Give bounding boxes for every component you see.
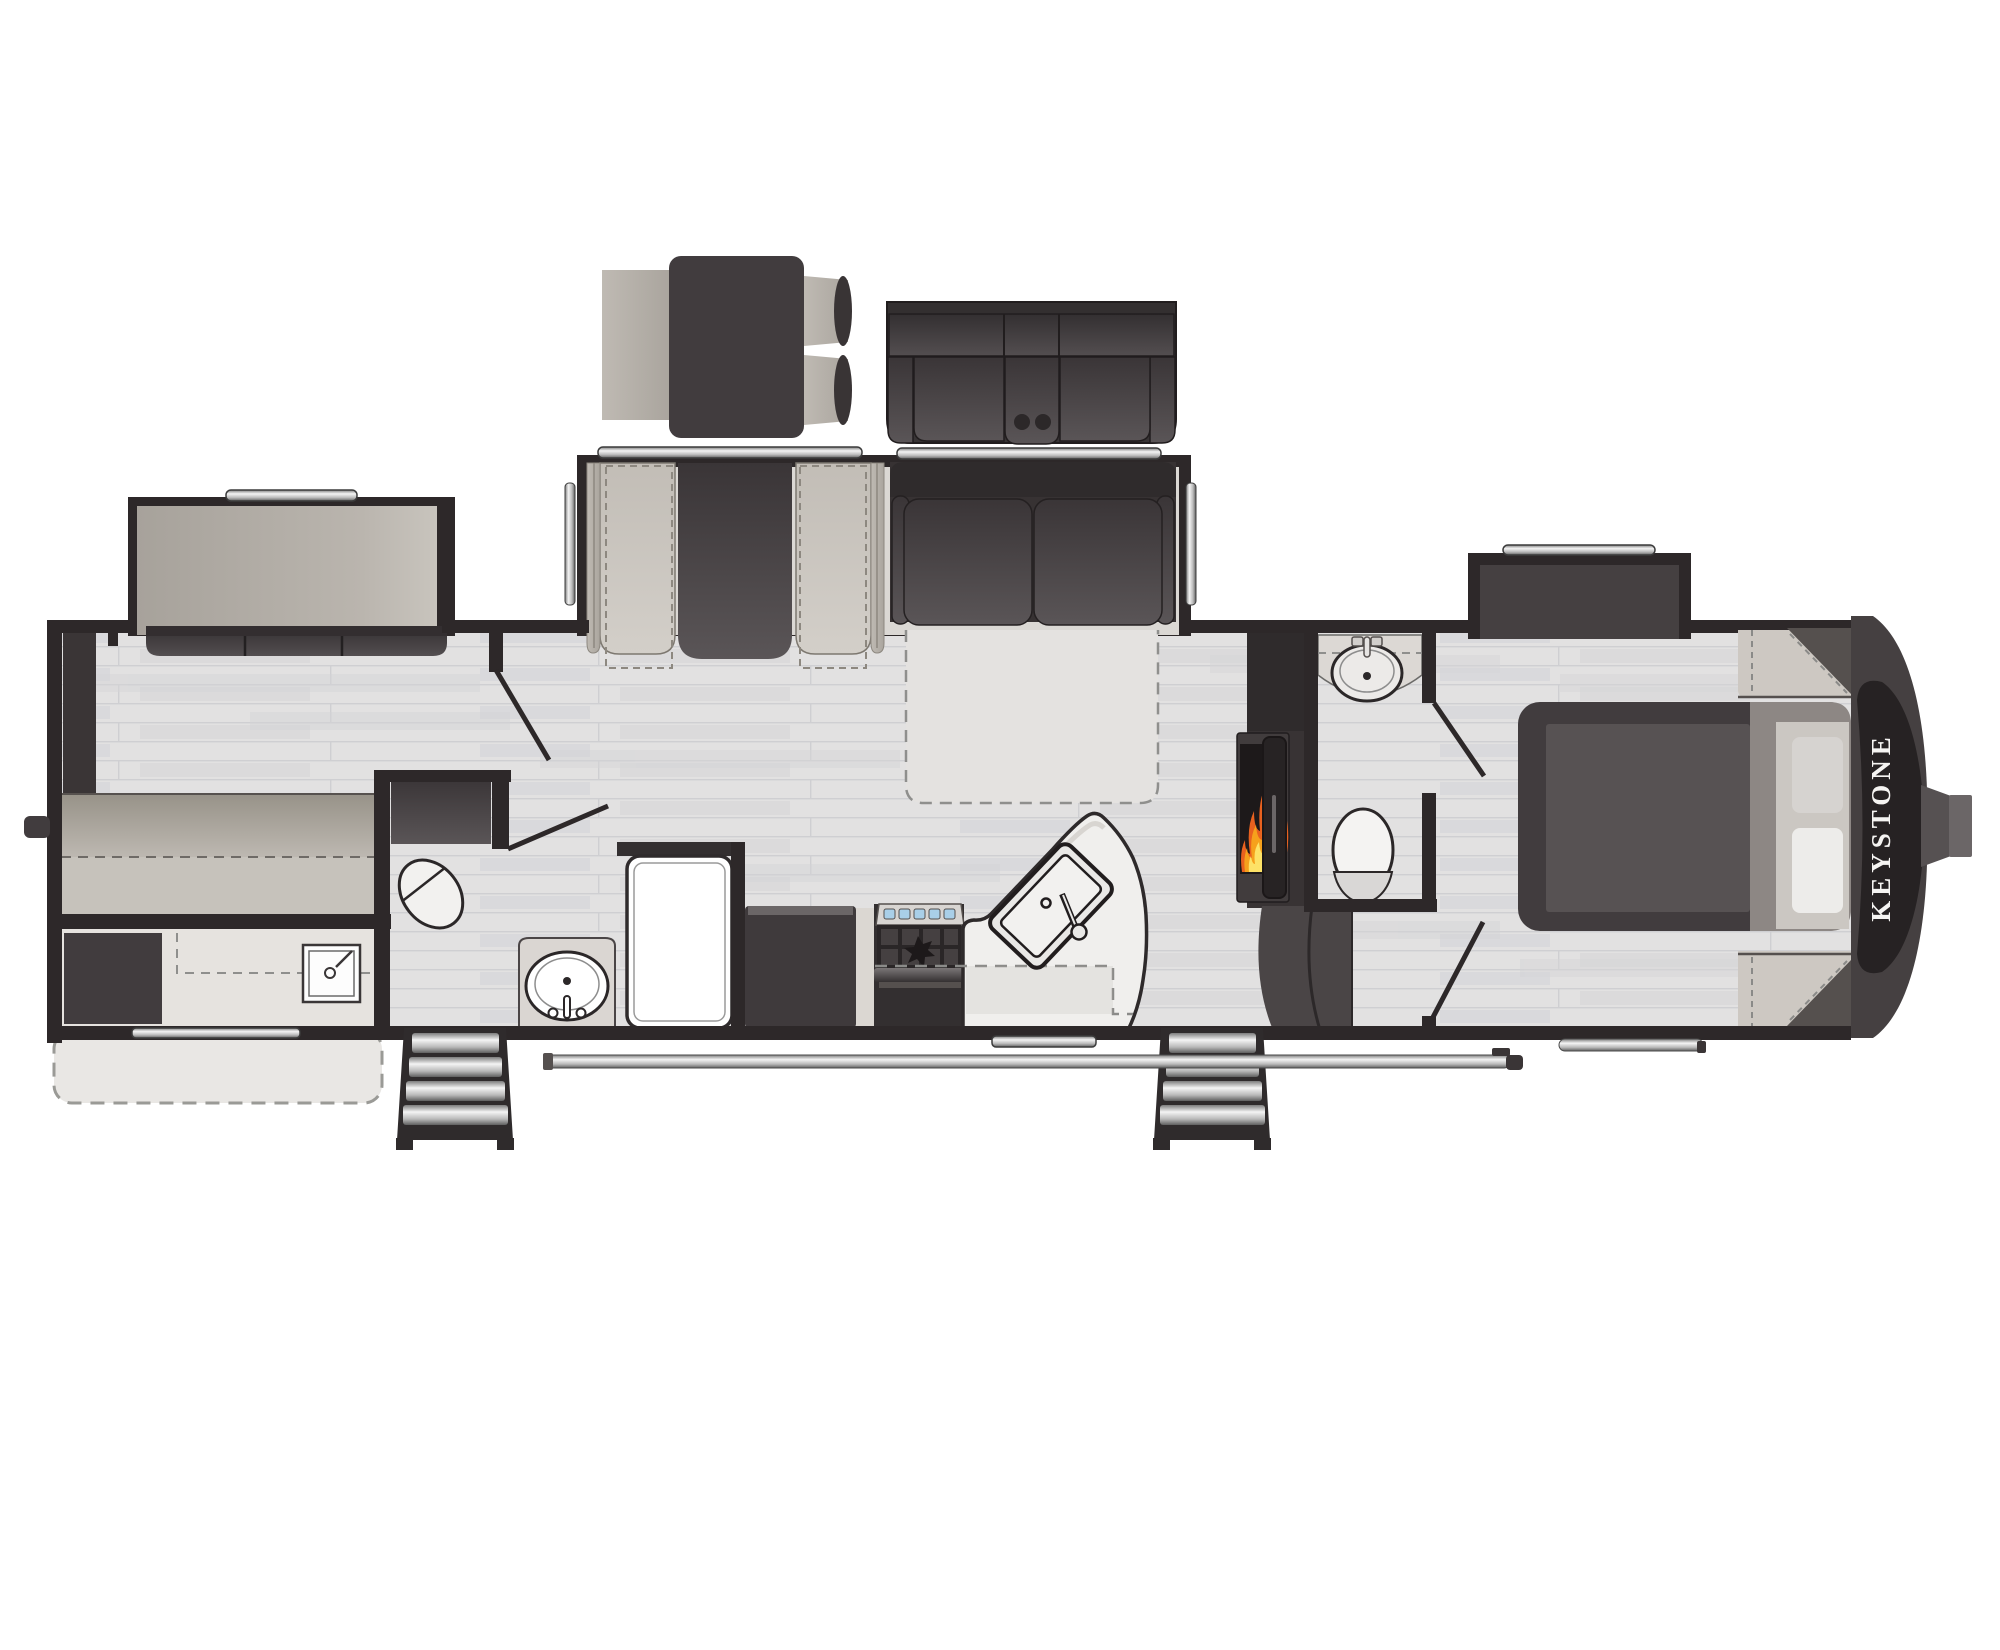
svg-text:KEYSTONE: KEYSTONE xyxy=(1866,732,1896,922)
